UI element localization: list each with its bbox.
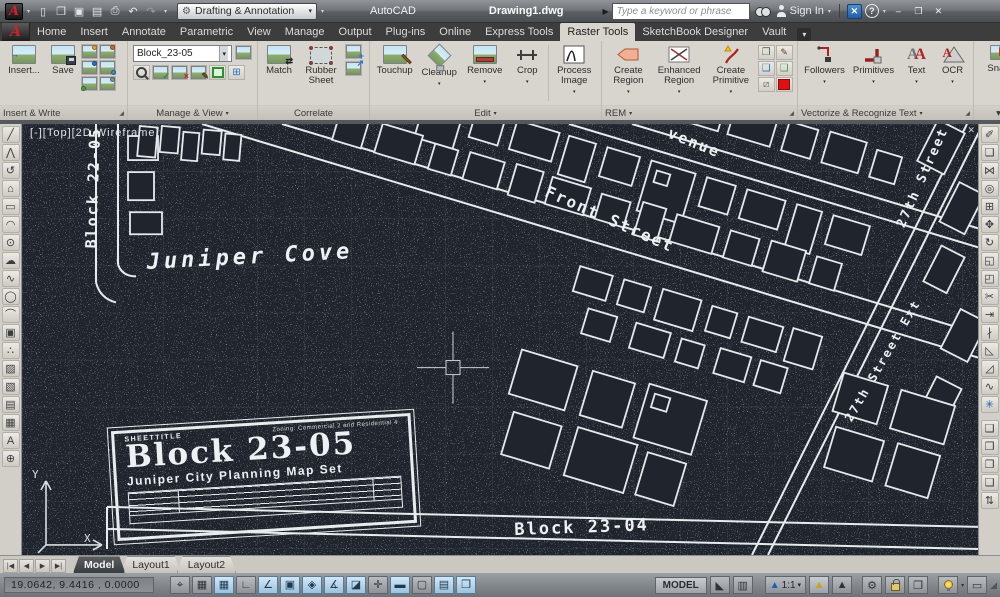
autocad-window: A ▾ ▯❐▣▤⎙↶↷ ▾ ⚙ Drafting & Annotation ▾ … xyxy=(0,0,1000,597)
polygon-icon[interactable]: ⌂ xyxy=(2,180,20,197)
embed-image-icon[interactable] xyxy=(81,60,98,75)
offset-icon[interactable]: ◎ xyxy=(981,180,999,197)
remove-icon xyxy=(473,45,497,64)
rectangle-icon[interactable]: ▭ xyxy=(2,198,20,215)
sheet-title-block: SHEETTITLE Zoning: Commercial 2 and Resi… xyxy=(111,413,417,541)
process-image-button[interactable]: Process Image ▾ xyxy=(551,43,597,97)
save-icon[interactable]: ▣ xyxy=(70,3,88,20)
revcloud-icon[interactable]: ☁ xyxy=(2,252,20,269)
search-arrow-icon[interactable]: ▶ xyxy=(602,7,608,16)
panel-caret-icon: ▾ xyxy=(629,110,632,117)
erase-icon[interactable]: ✐ xyxy=(981,126,999,143)
toolbar-close-icon[interactable]: ✕ xyxy=(967,125,975,136)
ribbon-tabs: HomeInsertAnnotateParametricViewManageOu… xyxy=(30,23,793,41)
last-layout-icon[interactable]: ▶| xyxy=(51,559,66,573)
panel-caret-icon: ▾ xyxy=(919,110,922,117)
ribbon-tab[interactable]: Insert xyxy=(73,23,115,41)
create-primitive-button[interactable]: Create Primitive ▾ xyxy=(708,43,754,97)
close-button[interactable]: ✕ xyxy=(930,4,947,19)
hatch-icon[interactable]: ▨ xyxy=(2,360,20,377)
line-icon[interactable]: ╱ xyxy=(2,126,20,143)
text-button[interactable]: AA Text ▾ xyxy=(901,43,933,87)
annotation-scale-icon: ▲ xyxy=(770,580,780,591)
flyout-caret-icon: ▾ xyxy=(915,77,918,87)
text-to-front-icon[interactable]: ⇅ xyxy=(981,492,999,509)
table-icon[interactable]: ▦ xyxy=(2,414,20,431)
help-caret-icon[interactable]: ▾ xyxy=(883,8,886,15)
annotation-visibility-icon[interactable]: ▲ xyxy=(809,576,829,594)
followers-icon xyxy=(813,45,837,64)
snap-icon xyxy=(990,45,1000,60)
sign-in-button[interactable]: Sign In xyxy=(790,5,824,17)
dialog-launcher-icon[interactable]: ◢ xyxy=(119,110,124,117)
break-icon[interactable]: ∤ xyxy=(981,324,999,341)
annotation-scale-control[interactable]: ▲ 1:1 ▾ xyxy=(765,576,806,594)
insert-write-tools xyxy=(81,44,116,91)
workspace-flyout-caret-icon[interactable]: ▾ xyxy=(321,8,324,15)
layout-tab-strip: |◀◀▶▶| ModelLayout1Layout2 xyxy=(0,555,1000,573)
panel-label-manage-view[interactable]: Manage & View ▾ xyxy=(128,105,257,120)
subtract-region-icon[interactable]: ⧄ xyxy=(758,77,775,92)
ribbon-tab[interactable]: Vault xyxy=(755,23,793,41)
coordinates-readout[interactable]: 19.0642, 9.4416 , 0.0000 xyxy=(4,577,154,593)
panel-caret-icon: ▾ xyxy=(494,110,497,117)
ribbon-tab[interactable]: Output xyxy=(332,23,379,41)
combo-caret-icon: ▾ xyxy=(219,46,228,61)
touchup-button[interactable]: Touchup xyxy=(374,43,416,76)
region-color-icon[interactable] xyxy=(776,77,793,92)
work-area: ╱⋀↺⌂▭◠⊙☁∿◯⌒▣∴▨▧▤▦A⊕ xyxy=(0,120,1000,555)
first-layout-icon[interactable]: |◀ xyxy=(3,559,18,573)
search-input[interactable] xyxy=(612,3,750,20)
save-image-button[interactable]: Save xyxy=(46,43,80,76)
blend-icon[interactable]: ∿ xyxy=(981,378,999,395)
mtext-icon[interactable]: A xyxy=(2,432,20,449)
ribbon-tab[interactable]: Plug-ins xyxy=(379,23,433,41)
panel-label-correlate[interactable]: Correlate xyxy=(258,105,369,120)
flyout-caret-icon: ▾ xyxy=(730,87,733,97)
snap-button[interactable]: Snap xyxy=(979,43,1000,74)
workspace-name: Drafting & Annotation xyxy=(195,5,294,17)
application-menu-button[interactable]: A xyxy=(2,23,30,41)
layout-tab[interactable]: Layout1 xyxy=(121,556,180,573)
sign-in-caret-icon[interactable]: ▾ xyxy=(828,8,831,15)
scale-caret-icon: ▾ xyxy=(798,581,802,589)
status-bar: 19.0642, 9.4416 , 0.0000 ⌖▦▦∟∠▣◈∡◪✛▬▢▤❒ … xyxy=(0,573,1000,597)
polyline-icon[interactable]: ⋀ xyxy=(2,144,20,161)
displace-icon[interactable]: + xyxy=(345,44,362,59)
model-space-button[interactable]: MODEL xyxy=(655,577,707,594)
ribbon-tab[interactable]: Express Tools xyxy=(478,23,560,41)
ribbon-tab[interactable]: View xyxy=(240,23,278,41)
hardware-acceleration-icon[interactable] xyxy=(938,576,958,594)
copy-region-icon[interactable]: ❐ xyxy=(758,45,775,60)
maximize-button[interactable]: ❐ xyxy=(910,4,927,19)
match-icon: ⇄ xyxy=(267,45,291,64)
edit-image-icon[interactable]: ✎ xyxy=(190,65,207,80)
send-to-back-icon[interactable]: ❒ xyxy=(981,438,999,455)
layout-tabs: ModelLayout1Layout2 xyxy=(73,556,232,573)
image-manager-icon[interactable] xyxy=(235,45,252,60)
send-under-icon[interactable]: ❏ xyxy=(981,474,999,491)
quick-properties-toggle[interactable]: ▤ xyxy=(434,576,454,594)
mirror-icon[interactable]: ⋈ xyxy=(981,162,999,179)
separator[interactable] xyxy=(981,414,999,419)
grid-display-toggle[interactable]: ▦ xyxy=(214,576,234,594)
touchup-icon xyxy=(383,45,407,64)
flyout-caret-icon: ▾ xyxy=(438,79,441,89)
autoscale-icon[interactable]: ▲ xyxy=(832,576,852,594)
bring-to-front-icon[interactable]: ❑ xyxy=(981,420,999,437)
ribbon-options-caret-icon[interactable]: ▾ xyxy=(797,28,811,41)
flyout-caret-icon: ▾ xyxy=(823,77,826,87)
panel-edit: Touchup Cleanup ▾ Remove ▾ Crop ▾ xyxy=(370,41,602,120)
autocad-logo-icon[interactable]: A xyxy=(5,3,23,20)
region-icon[interactable]: ▤ xyxy=(2,396,20,413)
layout-tab[interactable]: Model xyxy=(73,556,125,573)
undo-icon[interactable]: ↶ xyxy=(124,3,142,20)
workspace-gear-icon: ⚙ xyxy=(182,6,191,17)
ribbon-tab[interactable]: Home xyxy=(30,23,73,41)
flyout-caret-icon: ▾ xyxy=(483,77,486,87)
create-primitive-icon xyxy=(719,45,743,64)
arc-icon[interactable]: ◠ xyxy=(2,216,20,233)
document-title: Drawing1.dwg xyxy=(489,5,564,17)
flyout-caret-icon: ▾ xyxy=(627,87,630,97)
rotate-icon[interactable]: ↻ xyxy=(981,234,999,251)
extend-icon[interactable]: ⇥ xyxy=(981,306,999,323)
zoom-to-image-icon[interactable] xyxy=(133,65,150,80)
panel-insert-write: → Insert... Save Insert & Write xyxy=(0,41,128,120)
workspace-switching-icon[interactable]: ⚙ xyxy=(862,576,882,594)
primitives-icon xyxy=(862,45,886,64)
snap-mode-toggle[interactable]: ▦ xyxy=(192,576,212,594)
new-file-icon[interactable]: ▯ xyxy=(34,3,52,20)
ribbon-tab[interactable]: SketchBook Designer xyxy=(635,23,755,41)
gradient-icon[interactable]: ▧ xyxy=(2,378,20,395)
revision-icon[interactable]: ↺ xyxy=(2,162,20,179)
trim-icon[interactable]: ✂ xyxy=(981,288,999,305)
rem-tools: ❐ ✎ ❏ ❑ ⧄ xyxy=(758,45,793,92)
array-icon[interactable]: ⊞ xyxy=(981,198,999,215)
stretch-icon[interactable]: ◰ xyxy=(981,270,999,287)
flyout-caret-icon: ▾ xyxy=(951,77,954,87)
circle-icon[interactable]: ⊙ xyxy=(2,234,20,251)
transparency-toggle[interactable]: ▢ xyxy=(412,576,432,594)
ribbon-tab[interactable]: Manage xyxy=(278,23,332,41)
ribbon: → Insert... Save Insert & Write xyxy=(0,41,1000,120)
titlebar-divider xyxy=(839,4,840,18)
lineweight-toggle[interactable]: ▬ xyxy=(390,576,410,594)
panel-label-snap[interactable]: ▾ xyxy=(974,105,1000,120)
create-region-icon xyxy=(616,45,640,64)
enhanced-region-icon xyxy=(667,45,691,64)
insert-image-button[interactable]: → Insert... xyxy=(3,43,45,76)
copy-image-icon[interactable] xyxy=(99,76,116,91)
explode-icon[interactable]: ✳ xyxy=(981,396,999,413)
fillet-icon[interactable]: ◿ xyxy=(981,360,999,377)
polar-tracking-toggle[interactable]: ∠ xyxy=(258,576,278,594)
show-frames-icon[interactable] xyxy=(209,65,226,80)
next-layout-icon[interactable]: ▶ xyxy=(35,559,50,573)
status-toggles: ⌖▦▦∟∠▣◈∡◪✛▬▢▤❒ xyxy=(170,576,476,594)
bring-above-icon[interactable]: ❐ xyxy=(981,456,999,473)
flyout-caret-icon: ▾ xyxy=(678,87,681,97)
image-transmit-icon[interactable] xyxy=(99,60,116,75)
export-image-icon[interactable] xyxy=(99,44,116,59)
panel-label-insert-write[interactable]: Insert & Write ◢ xyxy=(0,105,127,120)
flyout-caret-icon: ▾ xyxy=(526,77,529,87)
object-snap-toggle[interactable]: ▣ xyxy=(280,576,300,594)
ellipse-arc-icon[interactable]: ⌒ xyxy=(2,306,20,323)
move-icon[interactable]: ✥ xyxy=(981,216,999,233)
panel-snap: Snap ▾ xyxy=(974,41,1000,120)
title-bar: A ▾ ▯❐▣▤⎙↶↷ ▾ ⚙ Drafting & Annotation ▾ … xyxy=(0,0,1000,23)
point-icon[interactable]: ∴ xyxy=(2,342,20,359)
logo-caret-icon[interactable]: ▾ xyxy=(27,8,30,15)
copy-icon[interactable]: ❏ xyxy=(981,144,999,161)
ribbon-tab[interactable]: Annotate xyxy=(115,23,173,41)
scale-icon[interactable]: ◱ xyxy=(981,252,999,269)
sign-in-avatar-icon xyxy=(776,5,787,17)
minimize-button[interactable]: – xyxy=(890,4,907,19)
dialog-launcher-icon[interactable]: ◢ xyxy=(789,110,794,117)
flyout-caret-icon: ▾ xyxy=(573,87,576,97)
add-selected-icon[interactable]: ⊕ xyxy=(2,450,20,467)
paper-space-icon[interactable]: ▥ xyxy=(733,576,753,594)
create-region-button[interactable]: Create Region ▾ xyxy=(606,43,650,97)
show-image-icon[interactable]: ✓ xyxy=(152,65,169,80)
merge-region-icon[interactable]: ❑ xyxy=(776,61,793,76)
exchange-apps-icon[interactable]: ✕ xyxy=(847,4,862,19)
match-button[interactable]: ⇄ Match xyxy=(261,43,297,76)
rubber-sheet-button[interactable]: Rubber Sheet xyxy=(298,43,344,86)
panel-correlate: ⇄ Match Rubber Sheet + ↗ Correlate xyxy=(258,41,370,120)
rubber-sheet-icon xyxy=(310,47,332,64)
panel-manage-view: Block_23-05 ▾ ✓ × ✎ ⊞ Manage & View ▾ xyxy=(128,41,258,120)
3d-object-snap-toggle[interactable]: ◈ xyxy=(302,576,322,594)
object-snap-tracking-toggle[interactable]: ∡ xyxy=(324,576,344,594)
spline-icon[interactable]: ∿ xyxy=(2,270,20,287)
crop-button[interactable]: Crop ▾ xyxy=(509,43,545,87)
chamfer-icon[interactable]: ◺ xyxy=(981,342,999,359)
panel-rem: Create Region ▾ Enhanced Region ▾ Create… xyxy=(602,41,798,120)
primitives-button[interactable]: Primitives ▾ xyxy=(851,43,897,87)
ocr-button[interactable]: A OCR ▾ xyxy=(937,43,969,87)
correlate-tools: + ↗ xyxy=(345,44,362,76)
clean-screen-icon[interactable]: ▭ xyxy=(967,576,987,594)
ortho-mode-toggle[interactable]: ∟ xyxy=(236,576,256,594)
resize-grip-icon[interactable]: ◢ xyxy=(990,580,996,591)
dynamic-input-toggle[interactable]: ✛ xyxy=(368,576,388,594)
open-file-icon[interactable]: ❐ xyxy=(52,3,70,20)
workspace-dropdown[interactable]: ⚙ Drafting & Annotation ▾ xyxy=(177,3,317,20)
ocr-icon: A xyxy=(941,45,965,64)
workspace-caret-icon: ▾ xyxy=(309,7,313,15)
toolbar-window-icon[interactable]: ❒ xyxy=(908,576,928,594)
drawing-viewport[interactable]: [-][Top][2D Wireframe] ✕ Juniper Cove Fr… xyxy=(22,124,978,555)
status-menu-caret-icon[interactable]: ▾ xyxy=(961,582,964,589)
cleanup-icon xyxy=(427,43,451,67)
ellipse-icon[interactable]: ◯ xyxy=(2,288,20,305)
hide-image-icon[interactable]: × xyxy=(171,65,188,80)
process-image-icon xyxy=(563,45,585,64)
prev-layout-icon[interactable]: ◀ xyxy=(19,559,34,573)
toggle-frames-icon[interactable]: ⊞ xyxy=(228,65,245,80)
capture-image-icon[interactable] xyxy=(81,76,98,91)
remove-button[interactable]: Remove ▾ xyxy=(463,43,507,87)
cleanup-button[interactable]: Cleanup ▾ xyxy=(418,43,460,89)
quick-access-toolbar: ▯❐▣▤⎙↶↷ xyxy=(34,3,160,20)
help-icon[interactable]: ? xyxy=(865,4,879,18)
save-image-icon xyxy=(51,45,75,64)
image-select-dropdown[interactable]: Block_23-05 ▾ xyxy=(133,45,232,62)
dynamic-ucs-toggle[interactable]: ◪ xyxy=(346,576,366,594)
panel-caret-icon: ▾ xyxy=(226,110,229,117)
toolbar-lock-icon[interactable] xyxy=(885,576,905,594)
insert-block-icon[interactable]: ▣ xyxy=(2,324,20,341)
ucs-x-label: X xyxy=(84,532,91,545)
ribbon-tab[interactable]: Online xyxy=(432,23,478,41)
layout-tab[interactable]: Layout2 xyxy=(177,556,236,573)
panel-vectorize: Followers ▾ Primitives ▾ AA Text ▾ xyxy=(798,41,974,120)
move-region-icon[interactable]: ❏ xyxy=(758,61,775,76)
modify-toolbar: ✐❏⋈◎⊞✥↻◱◰✂⇥∤◺◿∿✳❑❒❐❏⇅ xyxy=(978,124,1000,555)
panel-label-rem[interactable]: REM▾ ◢ xyxy=(602,105,797,120)
infer-constraints-toggle[interactable]: ⌖ xyxy=(170,576,190,594)
draw-toolbar: ╱⋀↺⌂▭◠⊙☁∿◯⌒▣∴▨▧▤▦A⊕ xyxy=(0,124,22,555)
save-as-icon[interactable]: ▤ xyxy=(88,3,106,20)
qat-caret-icon[interactable]: ▾ xyxy=(164,8,167,15)
ribbon-tab[interactable]: Raster Tools xyxy=(560,23,635,41)
insert-image-icon: → xyxy=(12,45,36,64)
edit-region-icon[interactable]: ✎ xyxy=(776,45,793,60)
redo-icon[interactable]: ↷ xyxy=(142,3,160,20)
enhanced-region-button[interactable]: Enhanced Region ▾ xyxy=(654,43,704,97)
app-title: AutoCAD xyxy=(370,5,416,17)
search-binoculars-icon[interactable] xyxy=(755,5,771,17)
layout-nav: |◀◀▶▶| xyxy=(3,559,67,573)
ribbon-tab-bar: A HomeInsertAnnotateParametricViewManage… xyxy=(0,23,1000,41)
text-icon: AA xyxy=(907,45,926,64)
scale-image-icon[interactable]: ↗ xyxy=(345,61,362,76)
ucs-y-label: Y xyxy=(32,468,39,481)
selection-cycling-toggle[interactable]: ❒ xyxy=(456,576,476,594)
dialog-launcher-icon[interactable]: ◢ xyxy=(965,110,970,117)
panel-label-vectorize[interactable]: Vectorize & Recognize Text▾ ◢ xyxy=(798,105,973,120)
crop-icon xyxy=(515,45,539,64)
followers-button[interactable]: Followers ▾ xyxy=(803,43,847,87)
plot-icon[interactable]: ⎙ xyxy=(106,3,124,20)
ribbon-tab[interactable]: Parametric xyxy=(173,23,240,41)
panel-label-edit[interactable]: Edit▾ xyxy=(370,105,601,120)
flyout-caret-icon: ▾ xyxy=(872,77,875,87)
new-image-icon[interactable] xyxy=(81,44,98,59)
model-space-icon[interactable]: ◣ xyxy=(710,576,730,594)
